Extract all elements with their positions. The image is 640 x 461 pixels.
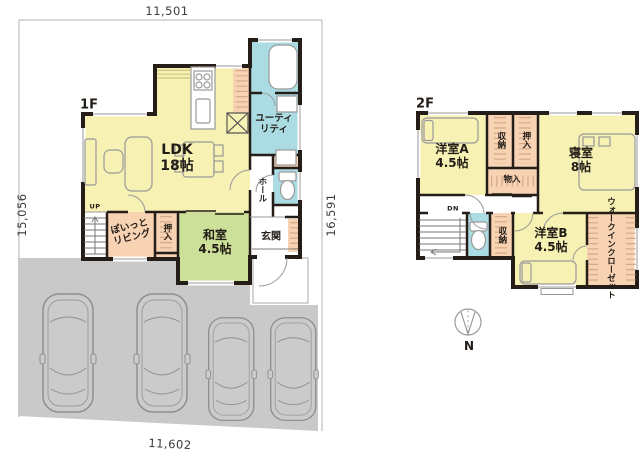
car-icon bbox=[40, 294, 96, 412]
dimension-left: 15,056 bbox=[15, 193, 29, 236]
room-b-label: 洋室B4.5帖 bbox=[534, 227, 567, 255]
dimension-right: 16,591 bbox=[324, 193, 338, 236]
genkan-label: 玄関 bbox=[261, 231, 281, 243]
stairs-up-label: UP bbox=[89, 203, 100, 210]
closet-oshiire-2f-label: 押入 bbox=[520, 132, 530, 149]
compass-north-label: N bbox=[464, 340, 474, 354]
toilet-icon bbox=[472, 231, 486, 250]
kitchen-counter-icon bbox=[191, 67, 215, 129]
washbasin-icon bbox=[276, 150, 296, 165]
oshiire-1f-label: 押入 bbox=[161, 224, 171, 241]
utility-label: ユーティリティ bbox=[255, 114, 292, 136]
floor1-label: 1F bbox=[80, 99, 98, 114]
floorplan-canvas: 11,501 15,056 16,591 11,602 1F LDK18帖 和室… bbox=[0, 0, 640, 461]
closet-shunou-top-label: 収納 bbox=[495, 132, 505, 149]
car-icon bbox=[134, 294, 190, 412]
car-icon bbox=[206, 318, 256, 421]
car-icon bbox=[268, 318, 318, 421]
room-ldk bbox=[83, 66, 250, 212]
washer-icon bbox=[277, 96, 297, 112]
washitsu-label: 和室4.5帖 bbox=[198, 229, 231, 257]
room-pantry bbox=[233, 66, 250, 113]
toilet-icon bbox=[281, 181, 295, 200]
wic-label: ウォークインクローゼット bbox=[604, 197, 615, 299]
compass-icon bbox=[455, 309, 481, 335]
bedroom-label: 寝室8帖 bbox=[569, 147, 593, 175]
floor2-label: 2F bbox=[416, 98, 434, 113]
closet-shunou-low-label: 収納 bbox=[496, 227, 506, 244]
closet-mononyu-label: 物入 bbox=[503, 176, 520, 186]
dimension-top: 11,501 bbox=[145, 4, 188, 18]
hall-label: ホール bbox=[256, 177, 266, 203]
room-a-label: 洋室A4.5帖 bbox=[435, 143, 468, 171]
porch-step bbox=[253, 258, 308, 303]
dimension-bottom: 11,602 bbox=[148, 436, 192, 452]
ldk-label: LDK18帖 bbox=[160, 142, 193, 174]
stairs-down-label: DN bbox=[447, 205, 459, 212]
bathtub-icon bbox=[269, 45, 297, 89]
